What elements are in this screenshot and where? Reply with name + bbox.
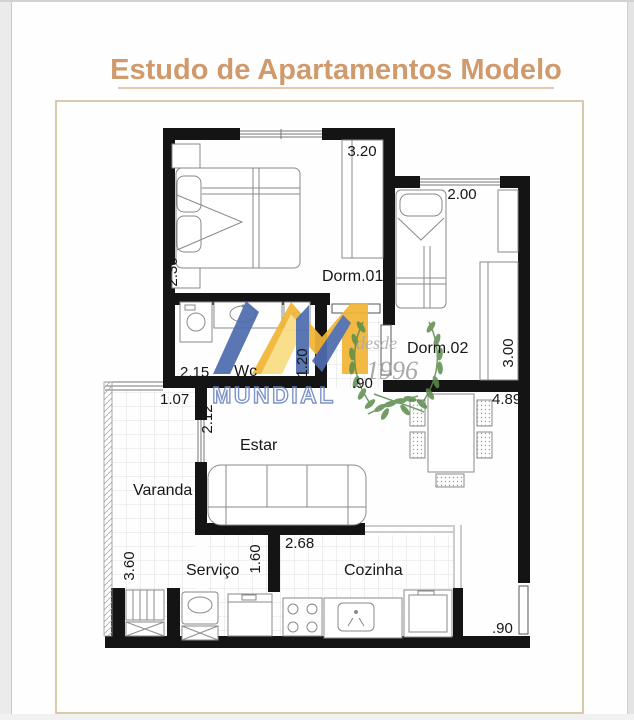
wc-label: Wc (234, 363, 257, 380)
page-title: Estudo de Apartamentos Modelo (110, 54, 562, 86)
dim-cozinha-width: 2.68 (285, 535, 314, 552)
dorm1-double-bed (176, 168, 300, 268)
dim-dorm1-depth: 2.36 (164, 257, 181, 286)
pillow (177, 176, 201, 212)
dim-living-width: 4.89 (492, 391, 521, 408)
dorm1-window (240, 128, 322, 140)
dining-chair (477, 400, 492, 426)
pillow (400, 194, 442, 216)
dorm2-label: Dorm.02 (407, 340, 468, 357)
dining-chair (477, 432, 492, 458)
servico-window-cabinet (126, 590, 164, 636)
dorm1-nightstand-top (172, 144, 200, 168)
stove (283, 598, 322, 636)
servico-tank (182, 592, 218, 640)
since-word-text: desde (356, 333, 397, 353)
dim-service-door: .90 (492, 620, 513, 637)
dining-chair (410, 432, 425, 458)
dim-varanda-opening: 1.07 (160, 391, 189, 408)
dining-table (428, 394, 474, 472)
dim-dorm2-width: 2.00 (447, 186, 476, 203)
dim-varanda-depth: 3.60 (121, 551, 138, 580)
since-year-text: 1996 (366, 356, 418, 385)
dining-chair (436, 474, 464, 487)
estar-sofa (208, 465, 366, 525)
title-underline (118, 87, 554, 89)
mundial-brand-text: MUNDIAL (212, 382, 336, 408)
floorplan-canvas: Estudo de Apartamentos Modelo (0, 0, 634, 720)
dorm2-closet (498, 190, 518, 252)
dorm2-single-bed (396, 190, 446, 308)
dim-wc-depth: 1.20 (294, 348, 311, 377)
dim-dorm1-width: 3.20 (347, 143, 376, 160)
dorm1-label: Dorm.01 (322, 268, 383, 285)
kitchen-sink (324, 598, 402, 638)
dim-servico-depth: 1.60 (247, 544, 264, 573)
varanda-label: Varanda (133, 482, 192, 499)
service-door (519, 586, 528, 634)
dim-dorm2-depth: 3.00 (500, 338, 517, 367)
floorplan-page: Estudo de Apartamentos Modelo (0, 0, 634, 720)
servico-label: Serviço (186, 562, 239, 579)
servico-fixtures (126, 590, 272, 640)
varanda-railing (104, 382, 112, 636)
servico-washing-machine (228, 594, 272, 636)
cozinha-label: Cozinha (344, 562, 403, 579)
estar-label: Estar (240, 437, 278, 454)
fridge (404, 590, 452, 637)
dim-wc-width: 2.15 (180, 364, 209, 381)
dim-estar-depth: 2.12 (199, 404, 216, 433)
dim-hall-width: .90 (352, 375, 373, 392)
pillow (177, 216, 201, 252)
wc-washer (180, 302, 212, 342)
